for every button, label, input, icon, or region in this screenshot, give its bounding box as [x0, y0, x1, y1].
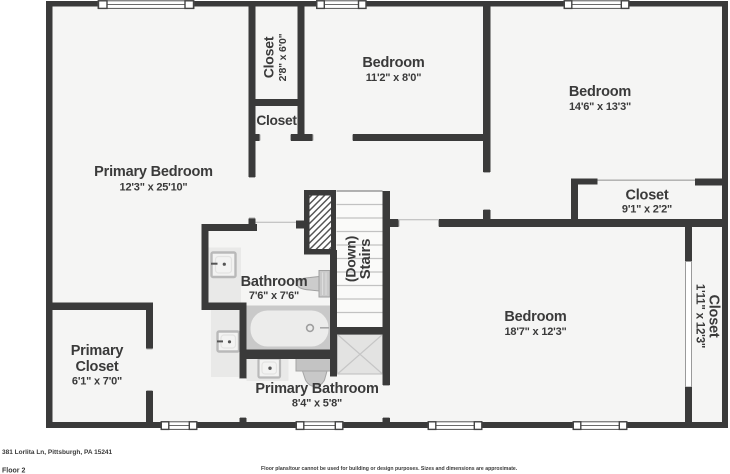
svg-text:Primary Bedroom: Primary Bedroom — [94, 164, 213, 180]
svg-text:1'11" x 12'3": 1'11" x 12'3" — [694, 284, 706, 348]
svg-text:8'4" x 5'8": 8'4" x 5'8" — [292, 398, 342, 410]
svg-text:Floor plans/tour cannot be use: Floor plans/tour cannot be used for buil… — [261, 466, 518, 472]
svg-text:Primary: Primary — [71, 343, 124, 359]
svg-text:Bedroom: Bedroom — [569, 84, 631, 100]
svg-text:Closet: Closet — [625, 188, 668, 204]
svg-text:18'7" x 12'3": 18'7" x 12'3" — [505, 326, 567, 338]
svg-text:Stairs: Stairs — [357, 239, 374, 280]
svg-text:Closet: Closet — [256, 113, 297, 128]
svg-text:7'6" x 7'6": 7'6" x 7'6" — [249, 290, 299, 302]
svg-text:6'1" x 7'0": 6'1" x 7'0" — [72, 376, 122, 388]
svg-text:Bedroom: Bedroom — [362, 55, 424, 71]
svg-text:381 Lorlita Ln, Pittsburgh, PA: 381 Lorlita Ln, Pittsburgh, PA 15241 — [2, 449, 113, 456]
svg-text:9'1" x 2'2": 9'1" x 2'2" — [622, 204, 672, 216]
svg-text:Floor 2: Floor 2 — [2, 468, 25, 474]
svg-text:11'2" x 8'0": 11'2" x 8'0" — [366, 72, 421, 84]
svg-text:Bedroom: Bedroom — [504, 309, 566, 325]
svg-text:Closet: Closet — [75, 359, 118, 375]
svg-text:Closet: Closet — [261, 36, 277, 78]
svg-text:14'6" x 13'3": 14'6" x 13'3" — [569, 101, 631, 113]
svg-text:12'3" x 25'10": 12'3" x 25'10" — [120, 182, 188, 194]
svg-text:Closet: Closet — [706, 294, 722, 337]
svg-text:2'8" x 6'0": 2'8" x 6'0" — [277, 33, 289, 81]
svg-text:Primary Bathroom: Primary Bathroom — [255, 381, 378, 397]
svg-text:Bathroom: Bathroom — [241, 274, 308, 290]
